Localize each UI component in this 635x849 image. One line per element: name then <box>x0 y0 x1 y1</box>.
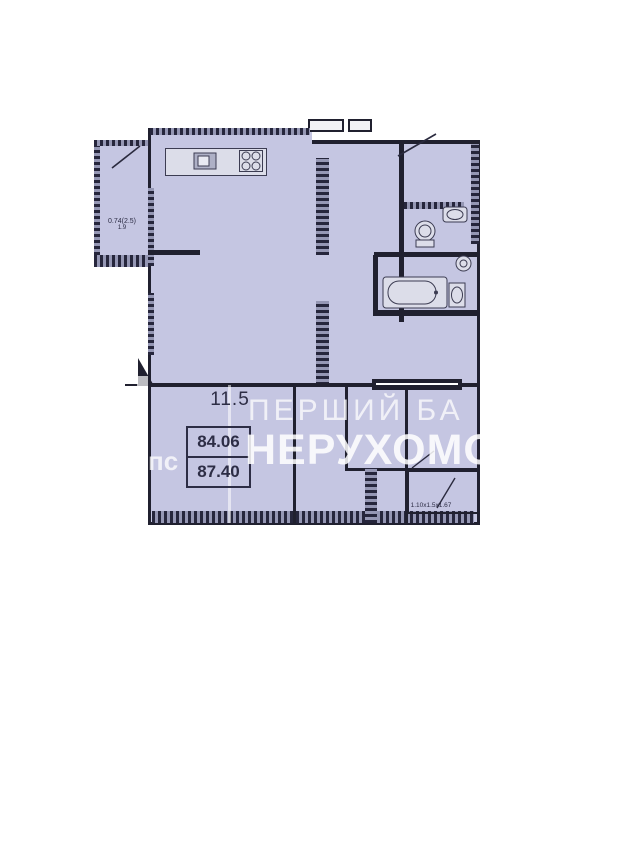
kitchen-sink-icon <box>193 152 217 170</box>
floor-plan: 11.5 84.06 87.40 0.74(2.5) 1.9 1.10x1.5x… <box>90 118 485 530</box>
overall-area-value: 87.40 <box>188 458 249 486</box>
corridor-door-swing-icon <box>410 449 436 470</box>
stove-icon <box>239 150 263 172</box>
boiler-icon <box>455 255 472 272</box>
bathroom-wall-left <box>373 255 378 315</box>
bathroom-wall-bottom <box>373 310 479 316</box>
sink-icon <box>442 206 468 223</box>
balcony-window-left <box>94 140 100 267</box>
shaft-wall-upper <box>316 158 329 255</box>
watermark-logo <box>137 376 148 472</box>
total-area-value: 84.06 <box>188 428 249 458</box>
washbasin-icon <box>448 282 466 308</box>
vent-shaft-box <box>348 119 372 132</box>
window-hatch-left-lower <box>148 293 154 355</box>
kitchen-divider-wall <box>148 250 200 255</box>
room-area-label: 11.5 <box>185 390 275 410</box>
lower-wall-b <box>345 387 348 470</box>
balcony-door-swing-icon <box>110 144 142 170</box>
divider-door-slit <box>376 383 458 385</box>
toilet-icon <box>412 220 438 248</box>
lower-wall-a <box>293 387 296 523</box>
vent-shaft-box <box>308 119 344 132</box>
bathtub-icon <box>382 276 448 309</box>
shaft-wall-lower <box>316 301 329 385</box>
window-hatch-right <box>471 144 479 244</box>
balcony-area-line1: 0.74(2.5) <box>95 218 149 225</box>
window-hatch-top <box>150 128 310 135</box>
area-summary-box: 84.06 87.40 <box>186 426 251 488</box>
entry-door-swing-icon <box>396 132 438 158</box>
balcony-area-label: 0.74(2.5) 1.9 <box>95 218 149 232</box>
storage-shaft-hatch <box>365 468 377 523</box>
balcony-area-line2: 1.9 <box>95 225 149 231</box>
storage-dimensions-label: 1.10x1.5x1.67 <box>388 503 474 510</box>
balcony-window-bottom <box>94 255 149 267</box>
